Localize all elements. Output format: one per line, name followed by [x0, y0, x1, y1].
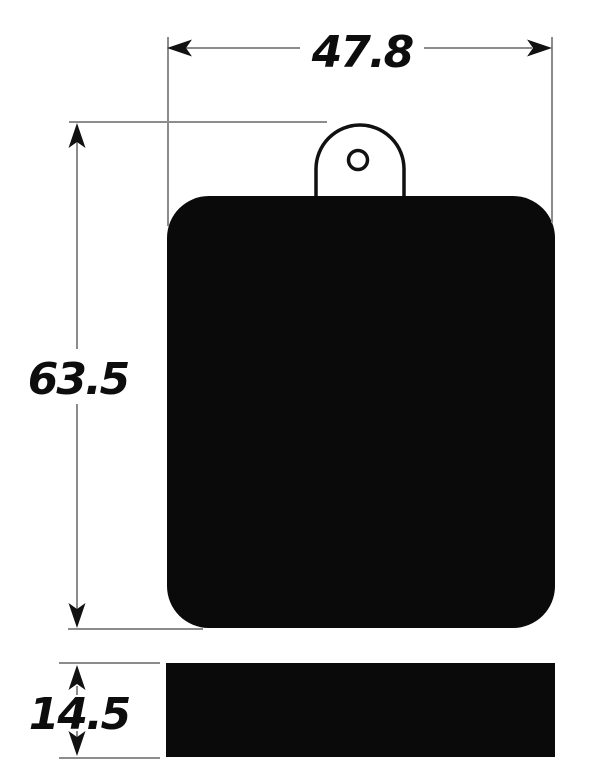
technical-drawing: 47.8 63.5 14.5 — [0, 0, 601, 784]
tab-hole — [349, 151, 368, 170]
brake-pad-drawing: 47.8 63.5 14.5 — [0, 0, 601, 784]
pad-front-view — [167, 196, 555, 628]
height-dimension-label: 63.5 — [28, 354, 129, 405]
width-dimension-label: 47.8 — [311, 27, 413, 78]
pad-side-view — [166, 663, 555, 757]
thickness-dimension-label: 14.5 — [29, 689, 130, 740]
